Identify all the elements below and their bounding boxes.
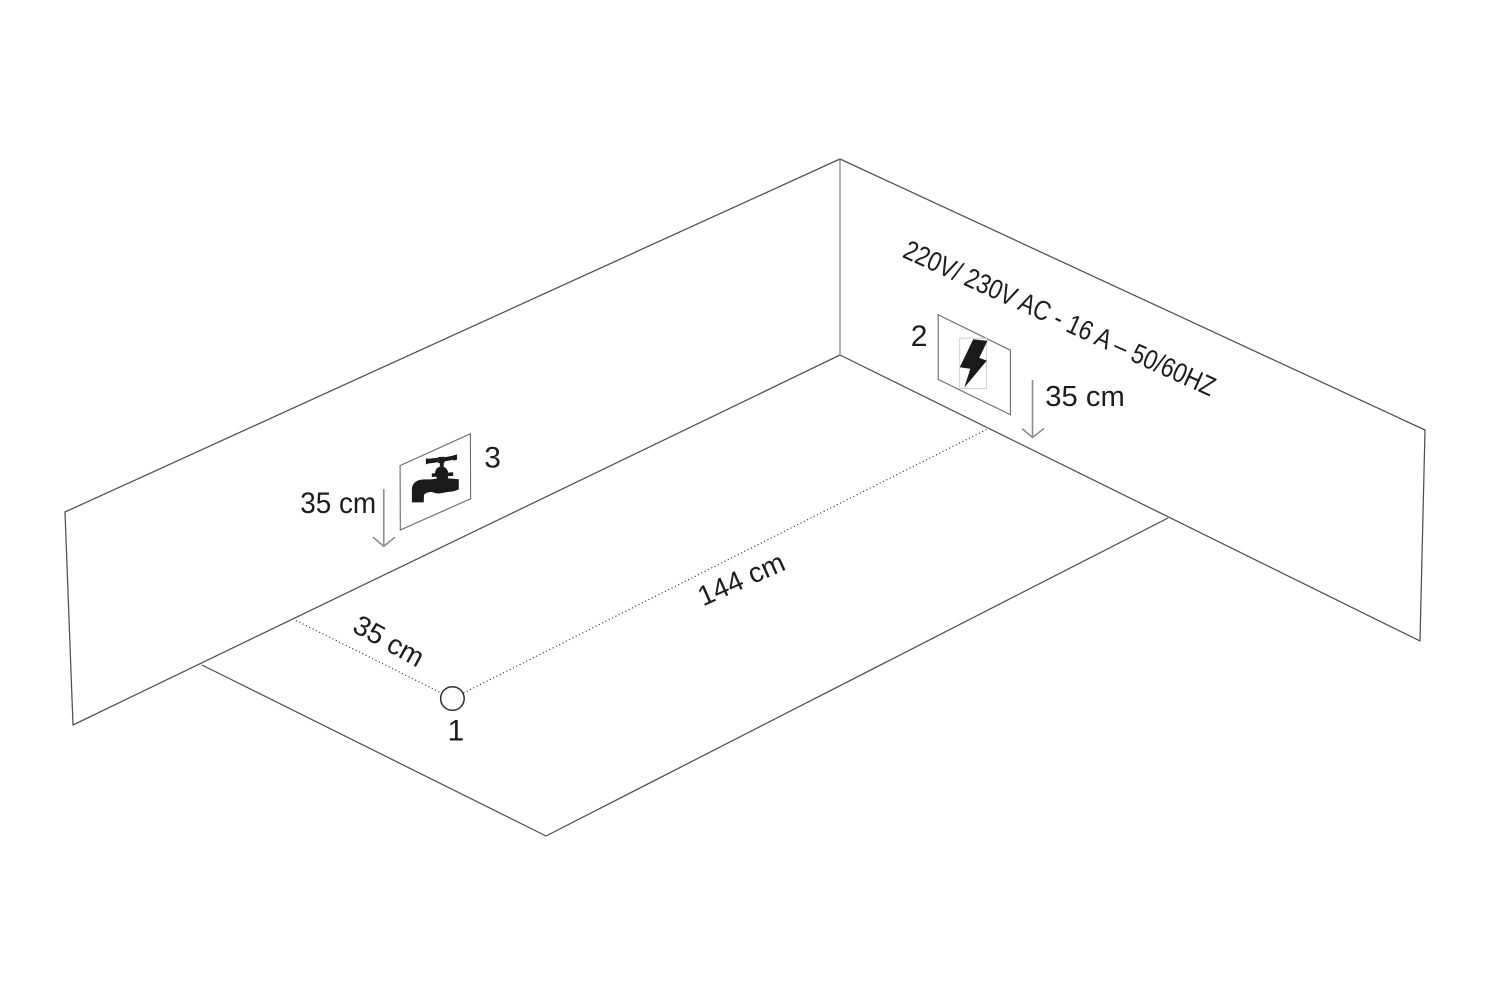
svg-text:1: 1: [448, 715, 465, 748]
svg-text:2: 2: [911, 320, 928, 353]
svg-text:35 cm: 35 cm: [300, 487, 376, 520]
svg-text:35 cm: 35 cm: [1045, 381, 1125, 413]
svg-text:3: 3: [484, 442, 501, 475]
